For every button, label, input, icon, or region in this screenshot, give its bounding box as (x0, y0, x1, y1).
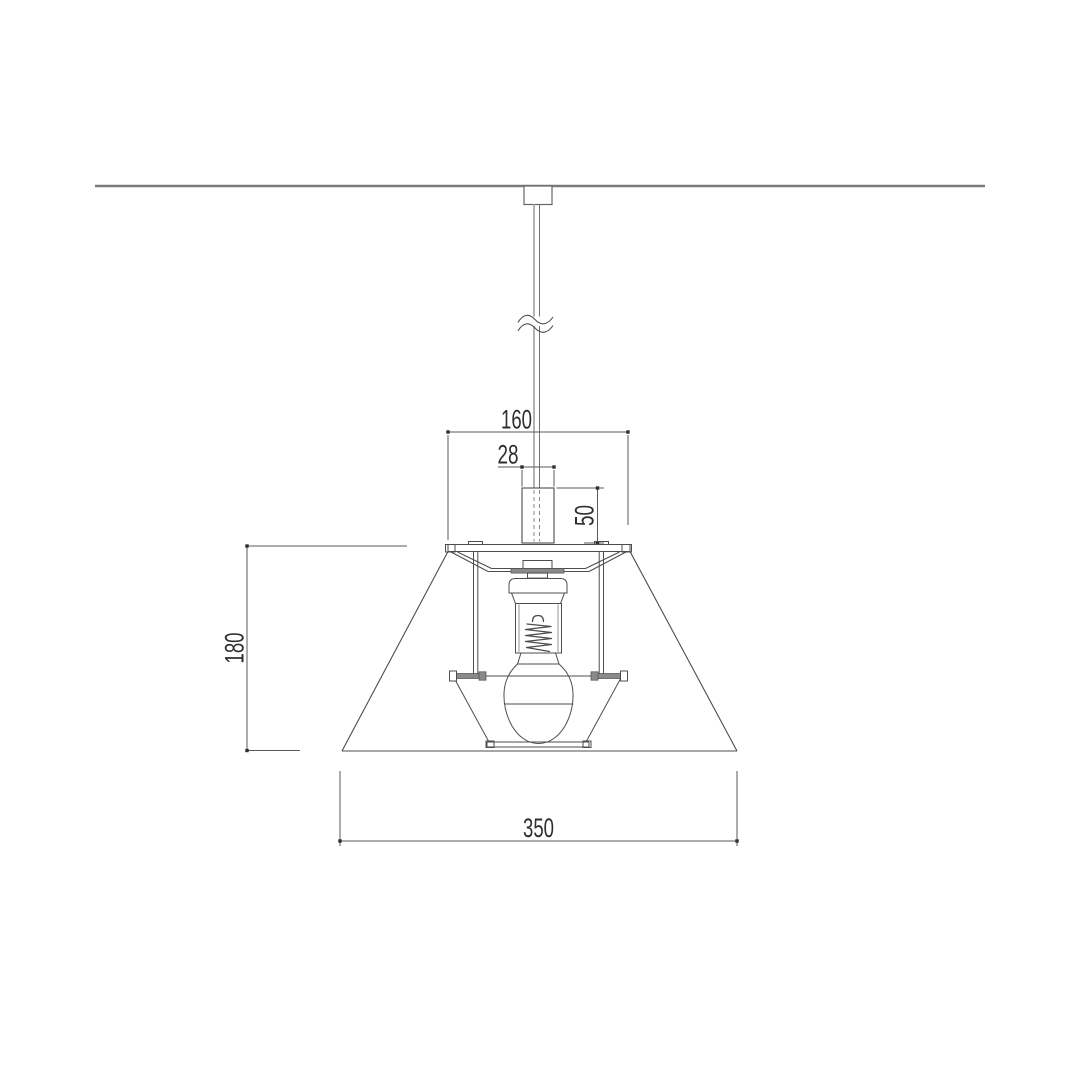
bulb-neck-right (556, 653, 560, 664)
socket-mounting-bar (511, 569, 564, 574)
socket-top-box (523, 561, 552, 569)
dimension-end-marker (520, 465, 523, 468)
ceiling-mount-box (524, 186, 552, 205)
right-bolt-head (621, 671, 628, 681)
dimension-shade-height: 180 (220, 544, 408, 752)
reflector-left-inner (458, 552, 492, 569)
shade-left-slant (342, 552, 448, 752)
rod-mount-tab-left (469, 542, 483, 545)
socket-bell-top (509, 579, 567, 594)
dimension-end-marker (245, 749, 248, 752)
dimension-end-marker (552, 465, 555, 468)
dimension-cord-cover-width: 28 (498, 440, 556, 487)
inner-diffuser (453, 676, 622, 742)
dimension-end-marker (735, 839, 738, 842)
dimension-label-50: 50 (570, 505, 600, 526)
dimension-end-marker (338, 839, 341, 842)
pendant-lamp-technical-drawing: 160 28 50 180 350 (0, 0, 1080, 1080)
dimension-shade-bottom-width: 350 (338, 771, 738, 846)
cord-cover-cap (522, 488, 554, 543)
dimension-label-350: 350 (523, 813, 554, 843)
reflector-right-outer (589, 552, 626, 572)
diffuser-right-slant (586, 676, 622, 742)
left-bolt-head (450, 671, 457, 681)
dimension-label-160: 160 (501, 405, 532, 435)
dimension-end-marker (596, 486, 599, 489)
right-bolt-nut (591, 672, 598, 680)
dimension-end-marker (446, 430, 449, 433)
ceiling (95, 186, 985, 205)
dimension-label-180: 180 (220, 633, 250, 664)
light-bulb (504, 653, 573, 744)
bulb-neck-left (518, 653, 522, 664)
socket-neck (528, 573, 548, 578)
dimension-label-28: 28 (498, 440, 519, 470)
socket-assembly (509, 561, 567, 654)
socket-taper (512, 593, 565, 604)
reflector-left-outer (451, 552, 488, 572)
plate-corner-bracket-left (446, 545, 456, 553)
left-bolt-nut (479, 672, 486, 680)
diffuser-bottom-rim (486, 741, 591, 748)
cord-break-gap (526, 317, 544, 327)
shade-right-slant (630, 552, 737, 752)
reflector-right-inner (586, 552, 620, 569)
suspension-cord (518, 205, 553, 489)
diffuser-left-slant (453, 676, 489, 742)
cap-body (522, 488, 554, 543)
dimension-cord-cover-height: 50 (557, 486, 605, 544)
dimension-end-marker (245, 544, 248, 547)
dimension-end-marker (626, 430, 629, 433)
dimension-top-plate-width: 160 (446, 405, 629, 541)
